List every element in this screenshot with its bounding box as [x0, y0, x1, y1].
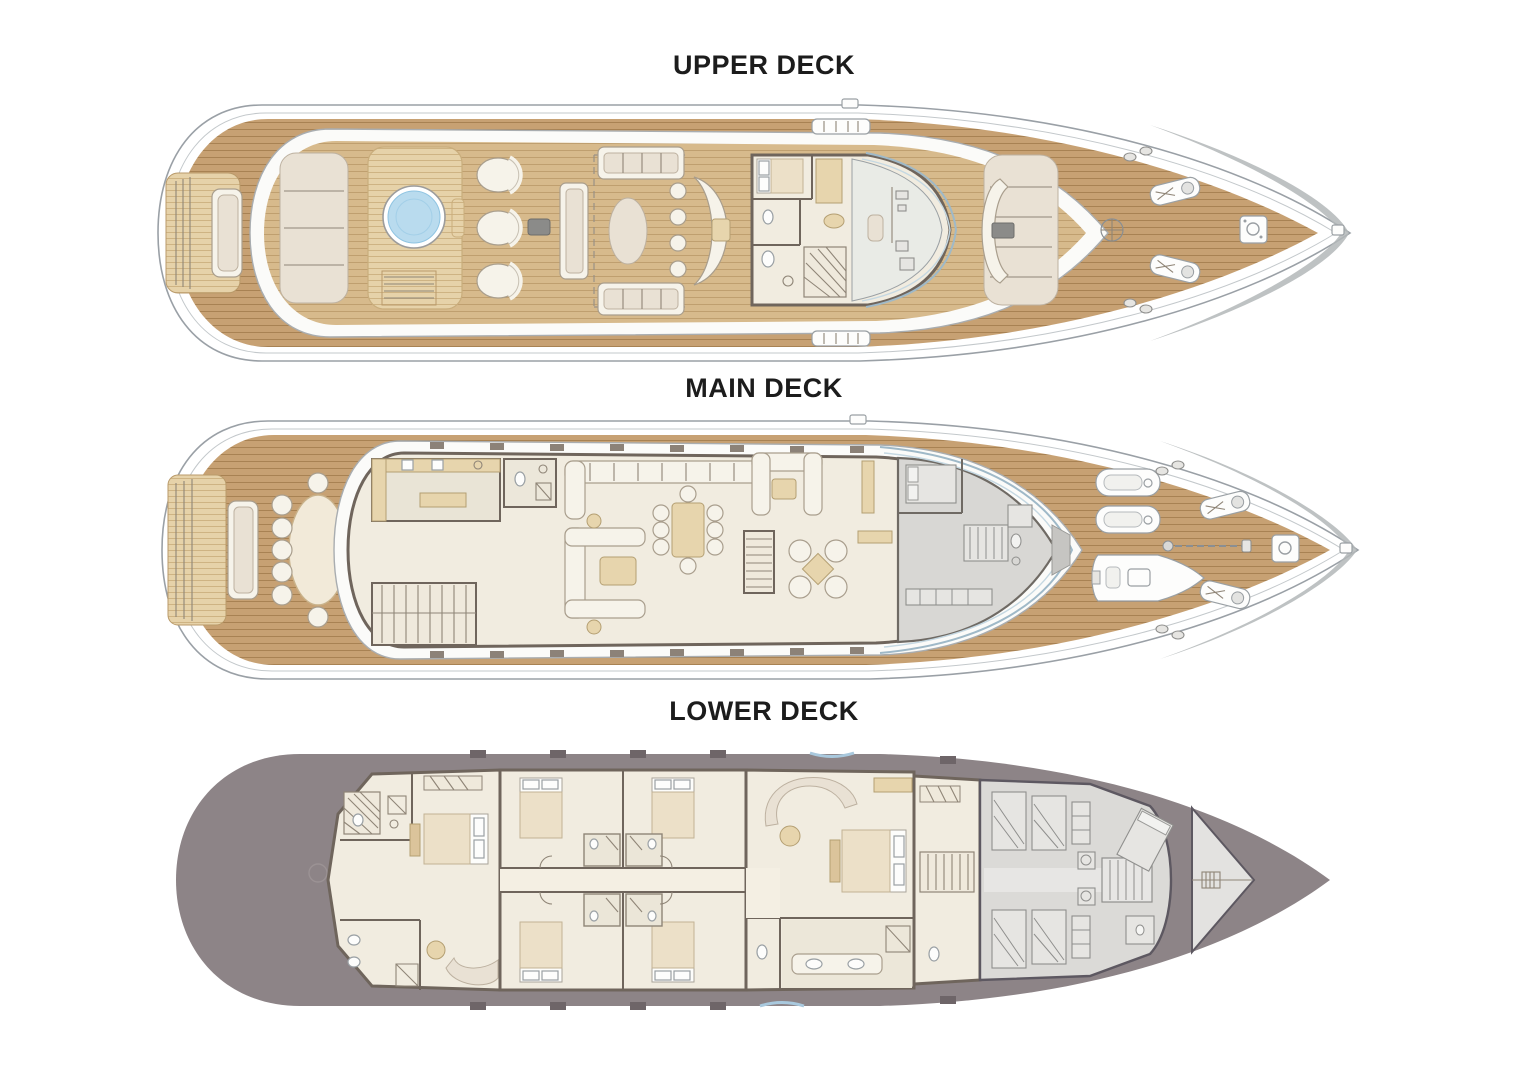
sink-icon: [806, 959, 822, 969]
bow-lounge: [982, 155, 1058, 305]
table: [992, 223, 1014, 238]
crew-counter: [906, 589, 992, 605]
jacuzzi-area: [368, 147, 464, 309]
galley: [372, 459, 500, 521]
day-head-main: [504, 459, 556, 507]
master-dresser: [874, 778, 912, 792]
side-table: [528, 219, 550, 235]
deckhouse: [752, 153, 956, 307]
c-sofa: [565, 528, 645, 618]
main-deck-title: MAIN DECK: [0, 373, 1528, 404]
toilet-icon: [929, 947, 939, 961]
master-foyer: [746, 868, 780, 918]
toilet-icon: [757, 945, 767, 959]
guest-corridor: [500, 868, 746, 892]
toilet-icon: [353, 814, 363, 826]
guest-cabin-bed: [652, 778, 694, 838]
crew-stairs: [964, 525, 1008, 561]
lounger: [477, 211, 519, 245]
main-deck-plan: [0, 413, 1528, 691]
crew-quarters: [980, 780, 1173, 980]
guest-ensuite: [626, 834, 662, 866]
swim-platform: [168, 475, 226, 625]
side-table: [772, 479, 796, 499]
toilet-icon: [515, 472, 525, 486]
toilet-icon: [1011, 534, 1021, 548]
bed-bench: [410, 824, 420, 856]
stair-lobby: [914, 776, 980, 984]
helm-seat: [868, 215, 883, 241]
crew-mess-table: [1008, 505, 1032, 527]
console: [858, 531, 892, 543]
bed-bench: [830, 840, 840, 882]
bow-fitting: [1340, 543, 1352, 553]
lounger: [477, 158, 519, 192]
mooring-capstan: [1240, 216, 1267, 243]
guest-cabin-bed: [520, 778, 562, 838]
sink-icon: [848, 959, 864, 969]
jet-ski: [1096, 506, 1160, 533]
yacht-deck-plans-page: { "document": { "type": "yacht-general-a…: [0, 0, 1528, 1080]
upper-deck-plan: [0, 95, 1528, 370]
staircase: [804, 247, 846, 297]
lounger: [477, 264, 519, 298]
upper-deck-title: UPPER DECK: [0, 50, 1528, 81]
mast-bracket: [850, 415, 866, 424]
guest-cabins: [500, 770, 746, 990]
dining-table: [672, 503, 704, 557]
tender-seat: [1106, 567, 1120, 588]
guest-ensuite: [584, 834, 620, 866]
guest-ensuite: [626, 894, 662, 926]
jet-ski: [1096, 469, 1160, 496]
sun-pad: [280, 153, 348, 303]
desk: [824, 214, 844, 228]
staircase-up: [744, 531, 774, 593]
vip-suite: [328, 770, 500, 990]
guest-cabin-bed: [520, 922, 562, 982]
mooring-capstan: [1272, 535, 1299, 562]
galley-island: [420, 493, 466, 507]
lower-deck-title: LOWER DECK: [0, 696, 1528, 727]
sink-icon: [348, 935, 360, 945]
mast-bracket: [842, 99, 858, 108]
sink-icon: [762, 251, 774, 267]
toilet-icon: [763, 210, 773, 224]
vip-table: [427, 941, 445, 959]
coffee-table: [600, 557, 636, 585]
lower-deck-plan: [0, 740, 1528, 1025]
vip-stairs: [344, 792, 380, 834]
master-suite: [746, 770, 914, 990]
pouf: [780, 826, 800, 846]
stern-platform: [166, 173, 242, 293]
bow-fitting: [1332, 225, 1344, 235]
cabinet: [862, 461, 874, 513]
staircase-down: [372, 583, 476, 645]
guest-ensuite: [584, 894, 620, 926]
helm-console: [896, 191, 908, 199]
cabinet: [816, 159, 842, 203]
coffee-table: [609, 198, 647, 264]
sink-icon: [348, 957, 360, 967]
guest-cabin-bed: [652, 922, 694, 982]
